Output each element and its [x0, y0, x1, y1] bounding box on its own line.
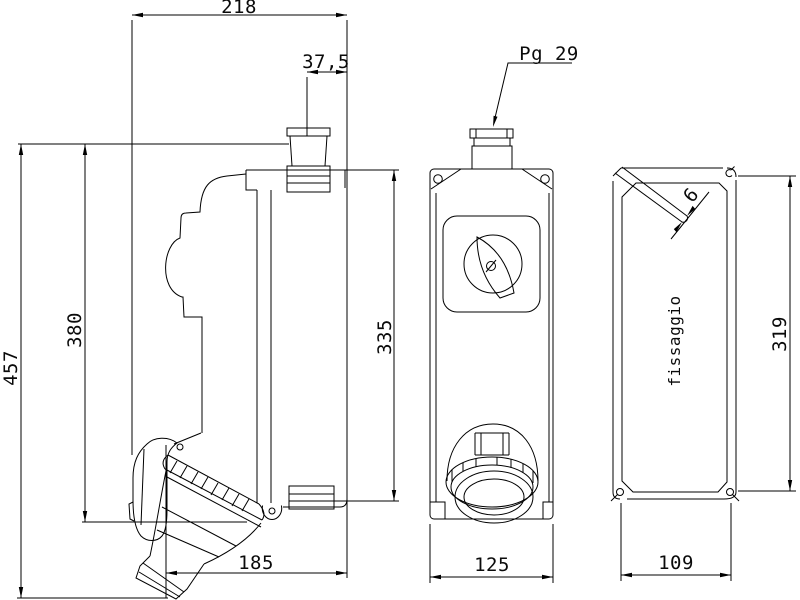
dim-body-height: 380: [64, 312, 86, 348]
gland-callout: Pg 29: [519, 43, 579, 65]
dim-gland-offset: 37,5: [302, 51, 350, 73]
dim-rear-height: 335: [374, 319, 396, 355]
dim-overall-height: 457: [0, 350, 22, 386]
mounting-label: fissaggio: [665, 295, 684, 386]
side-view-body: [166, 20, 399, 578]
technical-drawing-canvas: 218 37,5 457 380 335 185: [0, 0, 800, 600]
dim-overall-width: 218: [221, 0, 257, 18]
dim-body-depth: 185: [238, 552, 274, 574]
front-view-dimensions: Pg 29 125: [430, 43, 579, 583]
side-view-socket: [129, 433, 264, 599]
dim-slot-spacing-vertical: 319: [769, 316, 791, 352]
technical-drawing-page: 218 37,5 457 380 335 185: [0, 0, 800, 600]
dim-body-width: 125: [474, 554, 510, 576]
side-view-dimensions: 218 37,5 457 380 335 185: [0, 0, 399, 598]
rear-view-dimensions: 6 319 109: [621, 176, 796, 581]
front-view-body: [430, 129, 553, 523]
rear-view-body: fissaggio: [611, 167, 739, 502]
dim-slot-spacing-horizontal: 109: [658, 552, 694, 574]
